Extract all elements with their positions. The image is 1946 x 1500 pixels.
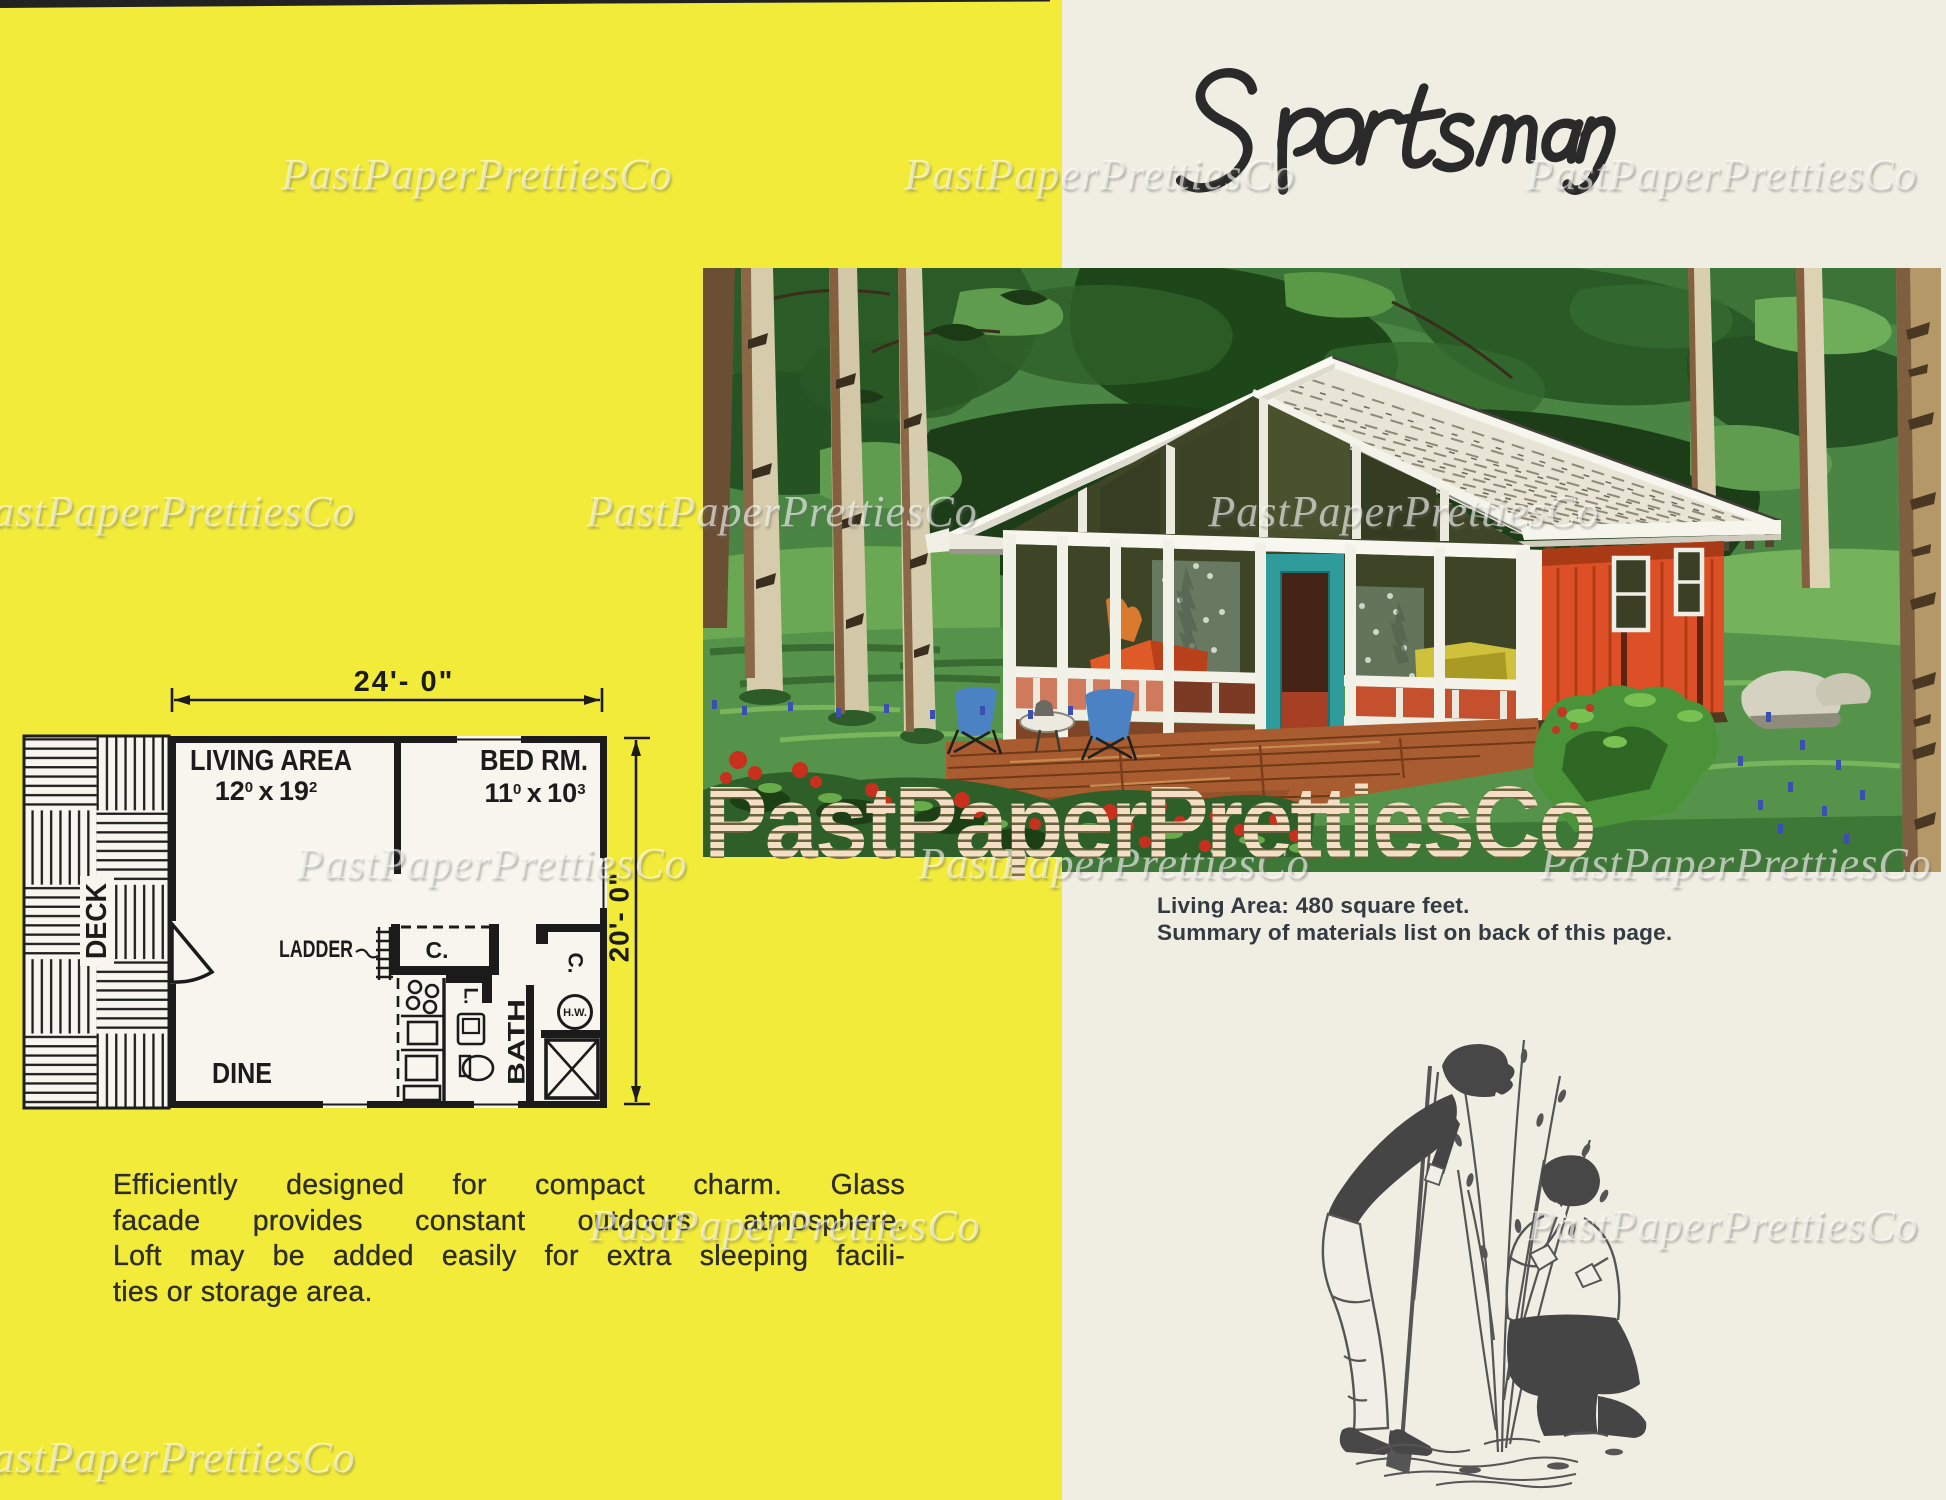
svg-text:110 x 103: 110 x 103: [484, 778, 585, 808]
svg-text:L.: L.: [460, 988, 481, 1005]
svg-text:LADDER: LADDER: [279, 936, 353, 963]
svg-text:LIVING AREA: LIVING AREA: [190, 745, 352, 777]
svg-text:24'- 0": 24'- 0": [354, 666, 455, 698]
svg-text:H.W.: H.W.: [563, 1007, 587, 1019]
svg-text:DINE: DINE: [212, 1058, 272, 1090]
svg-text:BED RM.: BED RM.: [480, 745, 588, 777]
svg-text:120 x 192: 120 x 192: [215, 776, 318, 806]
svg-text:C.: C.: [426, 937, 449, 963]
svg-text:DECK: DECK: [81, 883, 113, 959]
svg-text:C.: C.: [564, 953, 587, 974]
